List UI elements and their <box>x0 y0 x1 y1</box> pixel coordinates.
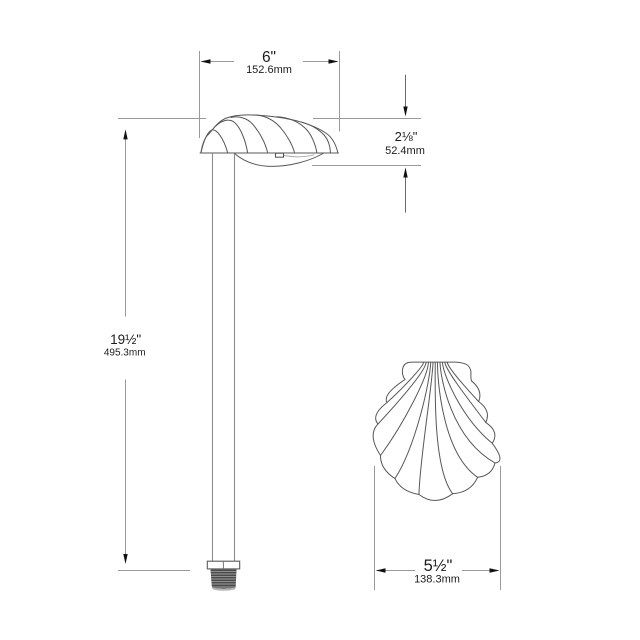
svg-text:138.3mm: 138.3mm <box>414 574 460 586</box>
svg-text:52.4mm: 52.4mm <box>385 145 425 157</box>
svg-text:5½": 5½" <box>424 557 453 575</box>
svg-text:495.3mm: 495.3mm <box>104 348 146 359</box>
svg-text:19½": 19½" <box>110 332 141 347</box>
svg-text:152.6mm: 152.6mm <box>246 64 292 76</box>
svg-text:2⅛": 2⅛" <box>395 129 418 144</box>
